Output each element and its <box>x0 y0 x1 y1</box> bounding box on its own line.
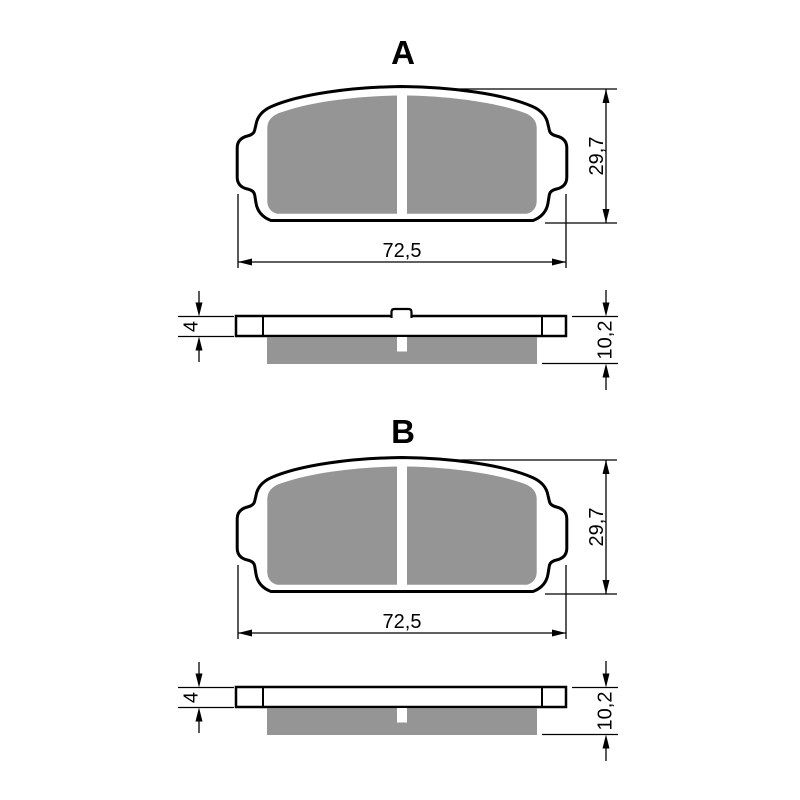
arrowhead-down <box>603 580 610 594</box>
arrowhead-up <box>603 735 610 749</box>
brake-pad-dimension-diagram: A 29,7 72,5 <box>0 0 800 800</box>
section-b-side-view <box>236 687 566 735</box>
dim-backplate-thickness-value: 4 <box>181 321 203 332</box>
section-a-label: A <box>391 34 415 71</box>
backplate-side <box>236 316 566 336</box>
dim-height-value: 29,7 <box>586 508 608 547</box>
arrowhead-down <box>196 303 203 317</box>
section-b-dim-total: 10,2 <box>542 661 618 761</box>
arrowhead-up <box>196 708 203 722</box>
arrowhead-left <box>238 630 252 637</box>
section-b-front-view <box>237 458 567 592</box>
diagram-canvas: A 29,7 72,5 <box>0 0 800 800</box>
arrowhead-right <box>552 259 566 266</box>
dim-backplate-thickness-value: 4 <box>181 692 203 703</box>
arrowhead-down <box>603 674 610 688</box>
arrowhead-up <box>603 89 610 103</box>
section-a: A 29,7 72,5 <box>178 34 618 390</box>
section-b-label: B <box>391 413 415 450</box>
arrowhead-up <box>603 460 610 474</box>
friction-pad-right <box>407 96 537 214</box>
section-a-dim-total: 10,2 <box>542 290 618 390</box>
section-a-front-view <box>237 87 567 221</box>
backplate-side <box>236 687 566 707</box>
arrowhead-left <box>238 259 252 266</box>
dim-height-value: 29,7 <box>586 137 608 176</box>
dim-width-value: 72,5 <box>383 611 422 633</box>
arrowhead-down <box>603 209 610 223</box>
mounting-nub <box>392 309 412 318</box>
arrowhead-up <box>603 364 610 378</box>
friction-pad-left <box>267 467 397 585</box>
arrowhead-right <box>552 630 566 637</box>
section-a-side-view <box>236 309 566 364</box>
arrowhead-up <box>196 337 203 351</box>
dim-width-value: 72,5 <box>383 240 422 262</box>
friction-pad-right <box>407 467 537 585</box>
friction-groove-notch <box>397 708 407 723</box>
section-b: B 29,7 72,5 <box>178 413 618 761</box>
friction-pad-left <box>267 96 397 214</box>
section-a-dim-backplate: 4 <box>178 291 234 362</box>
dim-total-thickness-value: 10,2 <box>595 692 617 731</box>
dim-total-thickness-value: 10,2 <box>595 321 617 360</box>
friction-groove-notch <box>397 337 407 352</box>
arrowhead-down <box>603 303 610 317</box>
arrowhead-down <box>196 674 203 688</box>
section-b-dim-backplate: 4 <box>178 662 234 733</box>
